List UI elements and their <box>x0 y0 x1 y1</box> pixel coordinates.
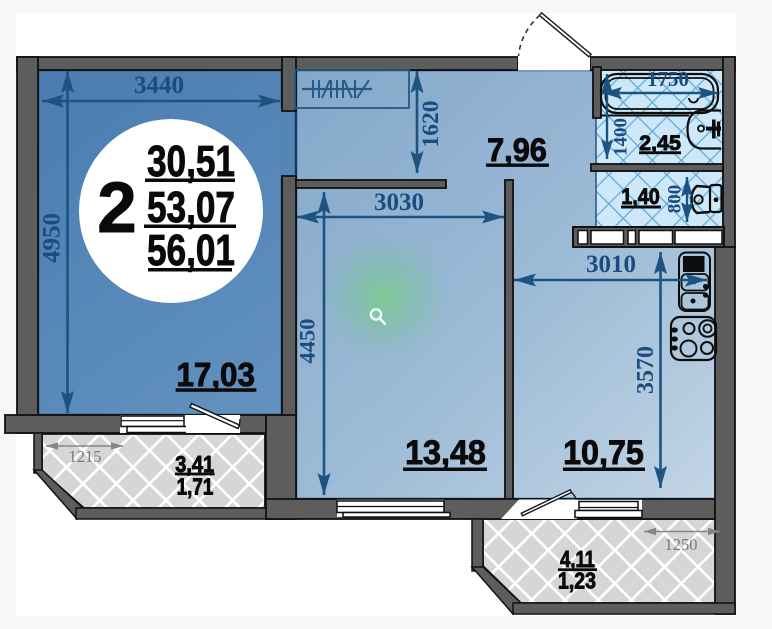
svg-text:2: 2 <box>97 169 137 248</box>
svg-text:3570: 3570 <box>633 346 659 394</box>
svg-text:17,03: 17,03 <box>176 356 254 393</box>
svg-text:4950: 4950 <box>39 213 66 263</box>
svg-text:56,01: 56,01 <box>147 226 235 275</box>
svg-text:3440: 3440 <box>134 72 184 99</box>
svg-text:1,23: 1,23 <box>558 568 596 594</box>
svg-text:1,71: 1,71 <box>177 475 214 500</box>
svg-text:7,96: 7,96 <box>487 132 547 168</box>
svg-text:1400: 1400 <box>611 118 632 156</box>
svg-text:4450: 4450 <box>295 319 320 364</box>
svg-text:10,75: 10,75 <box>563 434 644 472</box>
svg-text:1250: 1250 <box>665 535 698 554</box>
svg-text:13,48: 13,48 <box>405 434 486 472</box>
svg-text:1215: 1215 <box>69 447 102 466</box>
svg-text:1750: 1750 <box>647 67 689 91</box>
svg-text:800: 800 <box>665 185 686 214</box>
svg-text:3010: 3010 <box>586 251 636 278</box>
svg-text:1620: 1620 <box>418 101 444 148</box>
svg-text:3030: 3030 <box>374 189 424 216</box>
